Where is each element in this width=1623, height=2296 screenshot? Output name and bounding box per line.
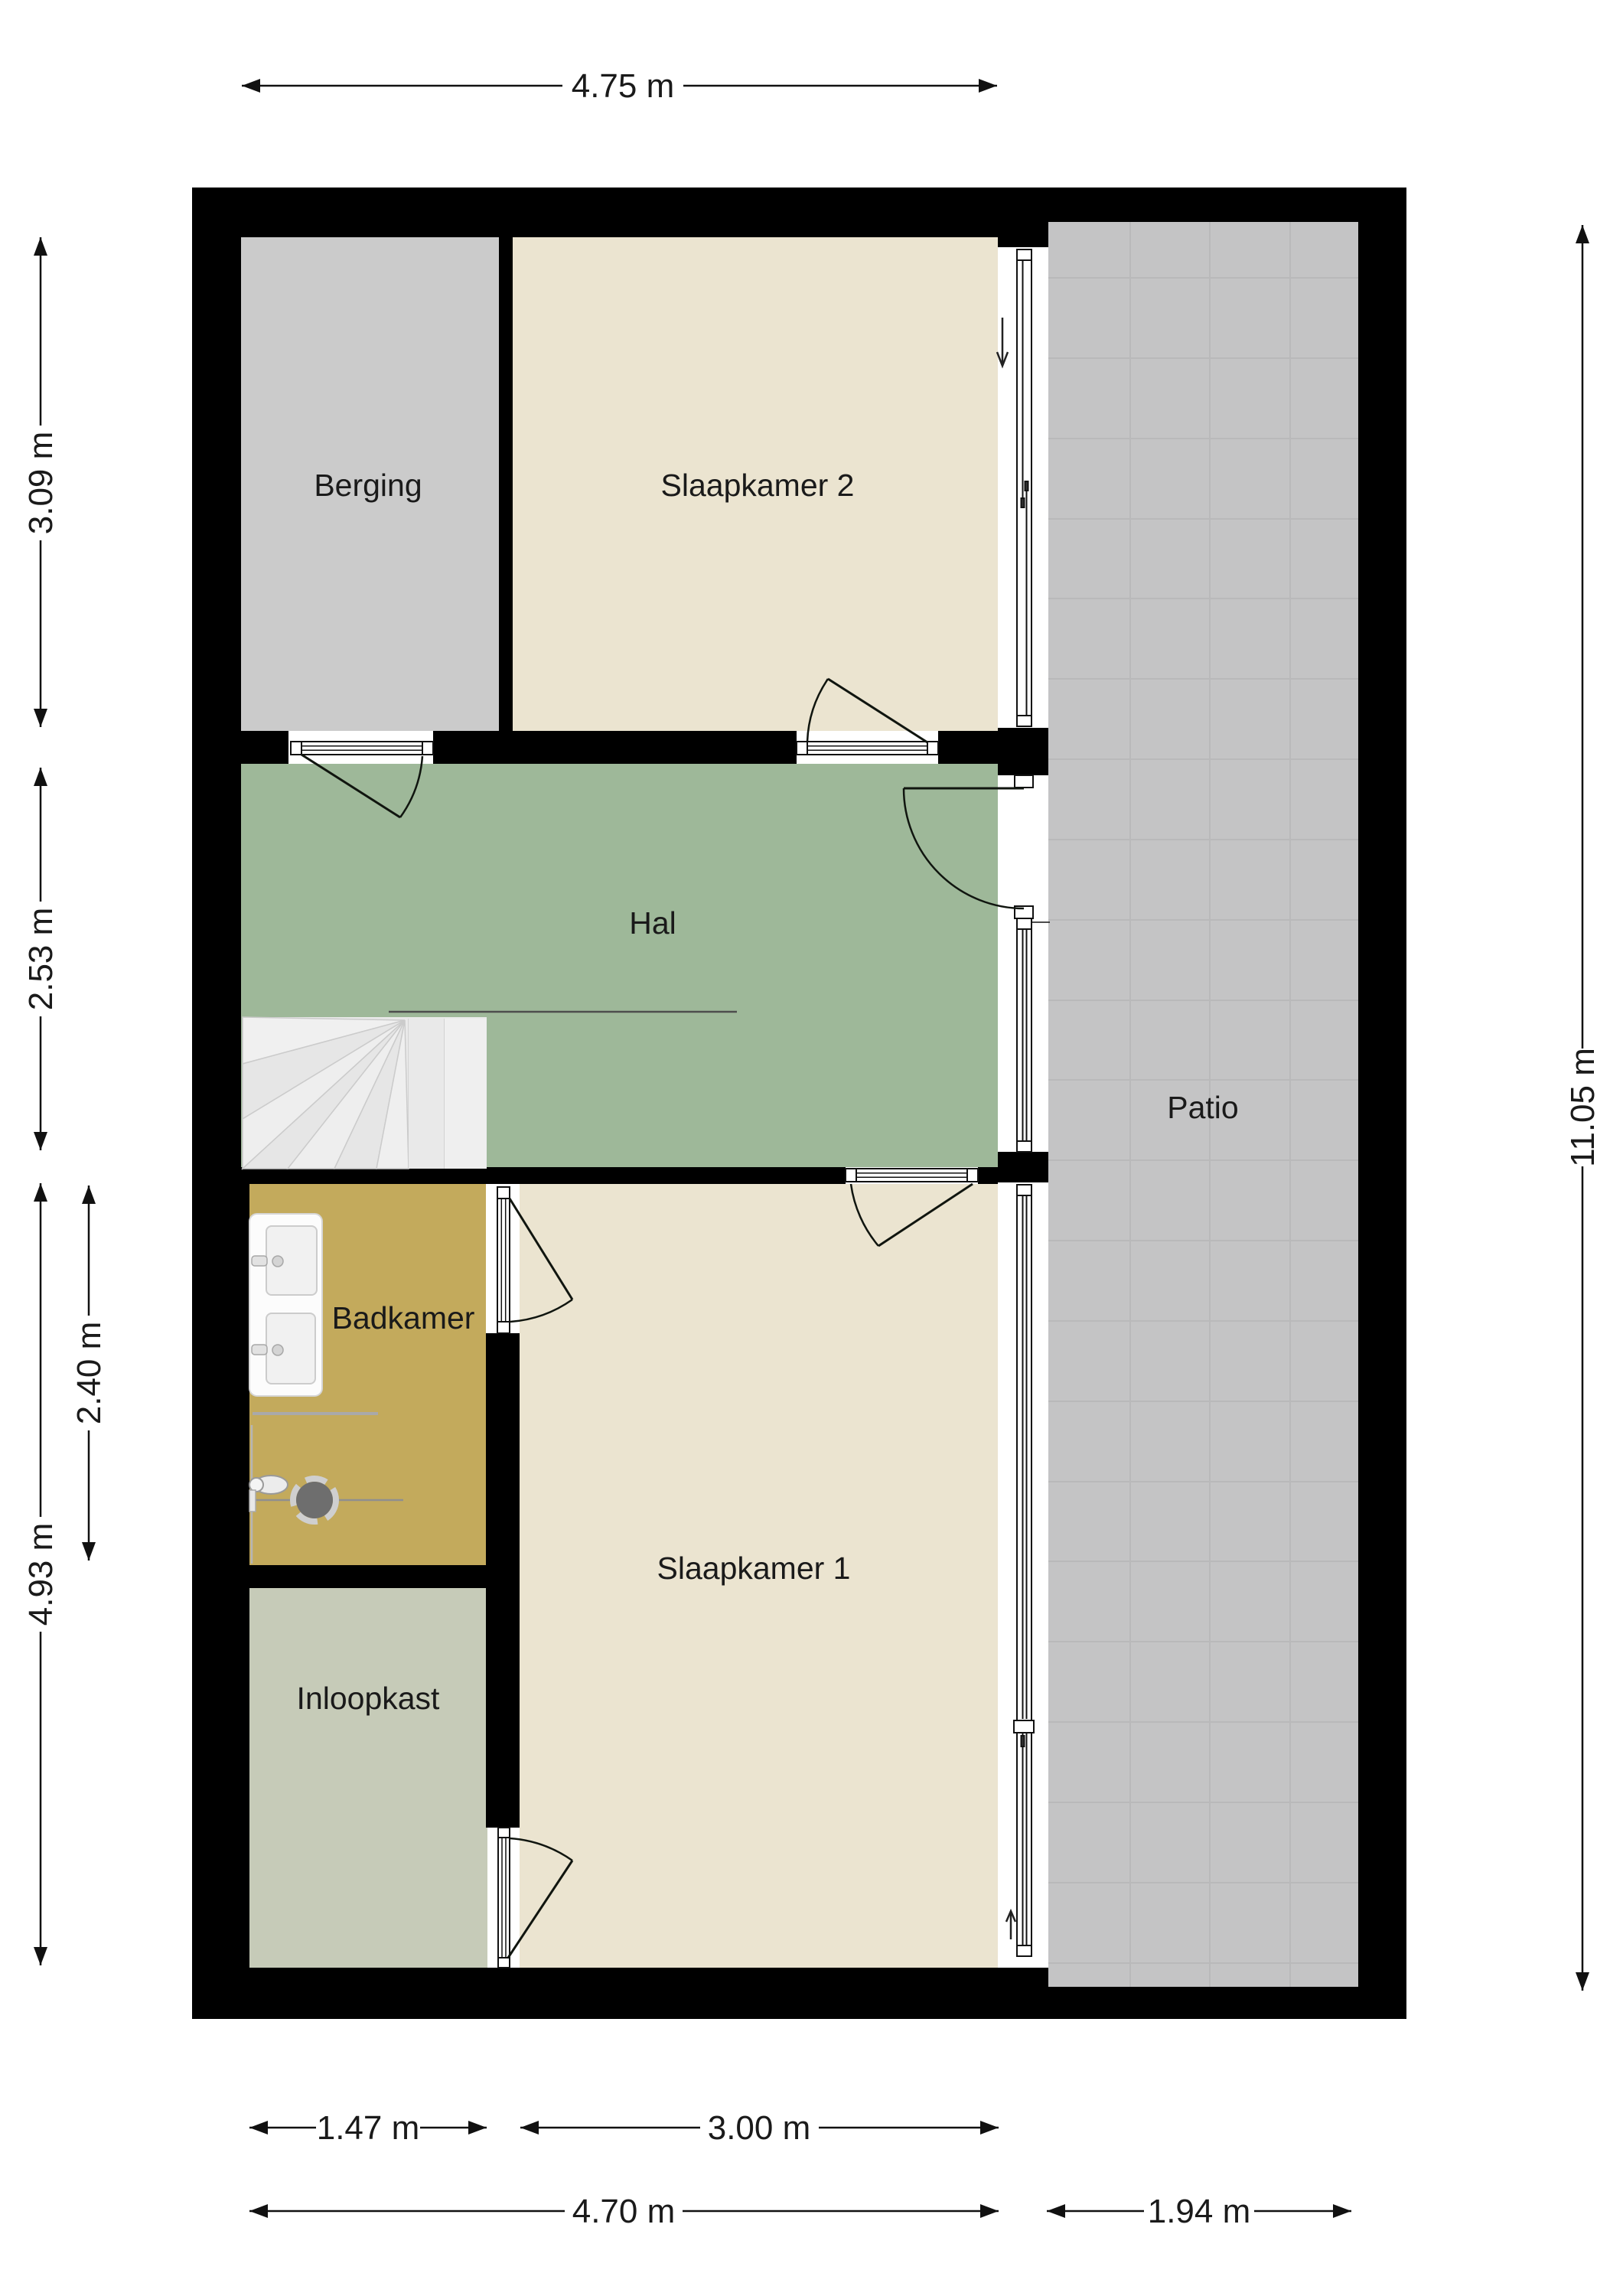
svg-text:1.47 m: 1.47 m	[317, 2109, 420, 2147]
svg-text:Slaapkamer 1: Slaapkamer 1	[657, 1551, 851, 1586]
svg-text:Patio: Patio	[1167, 1090, 1238, 1125]
svg-text:11.05 m: 11.05 m	[1564, 1048, 1602, 1167]
svg-text:2.40 m: 2.40 m	[70, 1322, 108, 1425]
svg-text:4.70 m: 4.70 m	[572, 2193, 676, 2230]
svg-text:Inloopkast: Inloopkast	[297, 1681, 441, 1716]
svg-text:4.93 m: 4.93 m	[22, 1523, 60, 1626]
svg-text:2.53 m: 2.53 m	[22, 908, 60, 1011]
svg-text:Hal: Hal	[629, 905, 676, 941]
svg-text:4.75 m: 4.75 m	[572, 67, 675, 105]
svg-text:3.09 m: 3.09 m	[22, 432, 60, 535]
svg-text:3.00 m: 3.00 m	[708, 2109, 811, 2147]
svg-text:Slaapkamer 2: Slaapkamer 2	[661, 468, 855, 503]
svg-text:Badkamer: Badkamer	[332, 1300, 475, 1336]
svg-text:Berging: Berging	[314, 468, 422, 503]
svg-text:1.94 m: 1.94 m	[1148, 2193, 1251, 2230]
